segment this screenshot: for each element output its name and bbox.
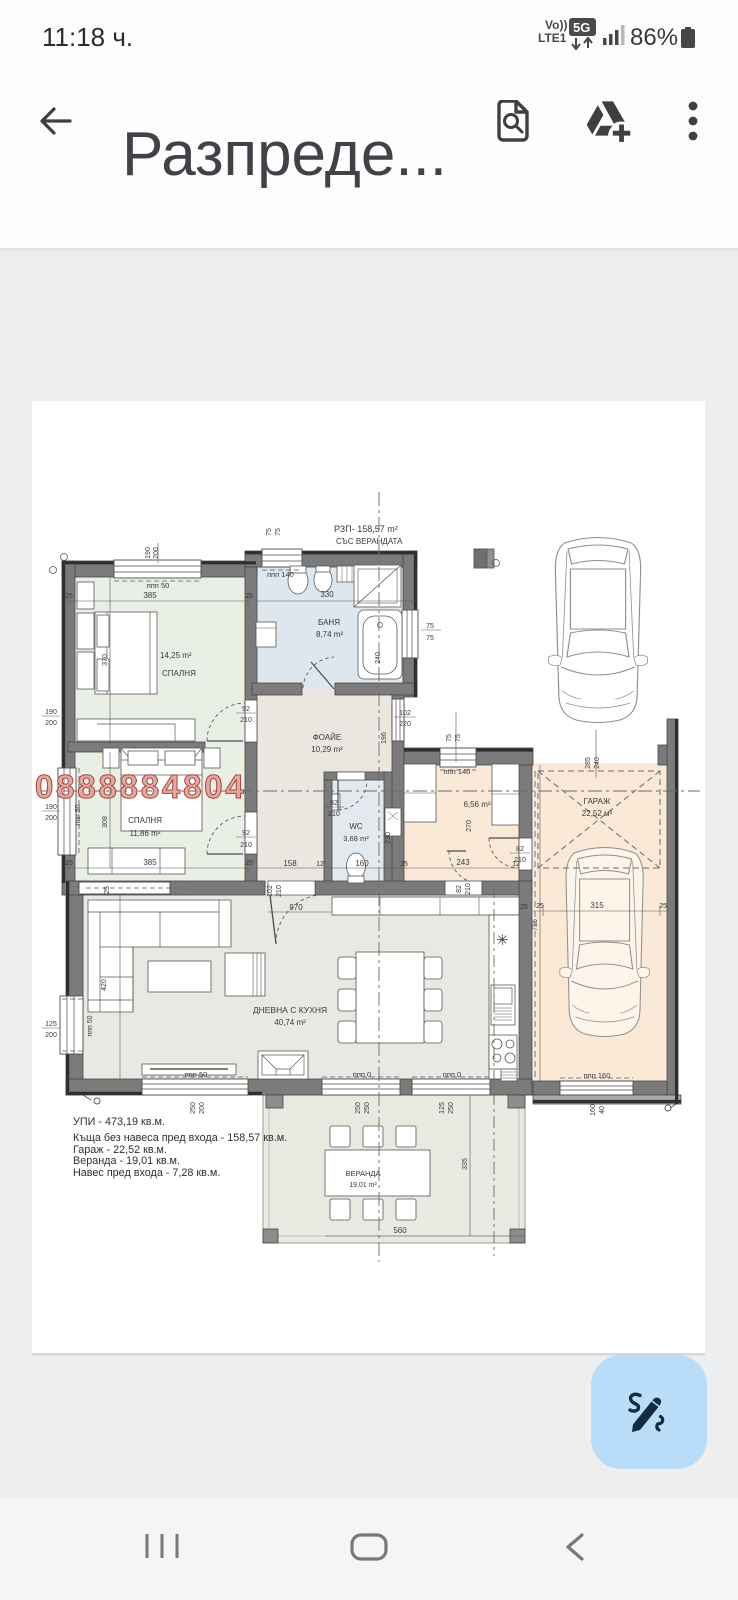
svg-text:75: 75 <box>275 528 282 536</box>
svg-text:86%: 86% <box>630 24 678 51</box>
svg-text:ппп 50: ппп 50 <box>75 804 82 825</box>
svg-text:210: 210 <box>328 811 340 818</box>
svg-text:25: 25 <box>245 593 253 600</box>
svg-text:230: 230 <box>385 832 392 844</box>
svg-text:243: 243 <box>456 858 470 867</box>
svg-text:WC: WC <box>349 822 363 831</box>
svg-text:ппп 50: ппп 50 <box>185 1070 208 1079</box>
svg-text:200: 200 <box>45 1032 57 1039</box>
svg-text:25: 25 <box>520 904 528 911</box>
svg-text:82: 82 <box>456 885 463 893</box>
svg-text:190: 190 <box>45 804 57 811</box>
svg-text:8,74 m²: 8,74 m² <box>316 630 343 639</box>
svg-text:560: 560 <box>393 1226 407 1235</box>
svg-text:25: 25 <box>400 861 408 868</box>
svg-text:200: 200 <box>199 1102 206 1114</box>
svg-text:11,86 m²: 11,86 m² <box>130 829 161 838</box>
svg-text:210: 210 <box>514 857 526 864</box>
svg-text:250: 250 <box>448 1102 455 1114</box>
svg-text:82: 82 <box>330 800 338 807</box>
svg-text:5G: 5G <box>573 20 590 35</box>
svg-text:СПАЛНЯ: СПАЛНЯ <box>128 816 162 825</box>
svg-text:3,68 m²: 3,68 m² <box>343 834 369 843</box>
svg-text:196: 196 <box>381 732 388 744</box>
svg-text:102: 102 <box>267 885 274 897</box>
svg-text:270: 270 <box>466 820 473 832</box>
svg-text:308: 308 <box>102 816 109 828</box>
svg-text:125: 125 <box>439 1102 446 1114</box>
svg-text:210: 210 <box>465 883 472 895</box>
svg-text:200: 200 <box>45 720 57 727</box>
svg-text:220: 220 <box>399 721 411 728</box>
svg-text:ппп 0: ппп 0 <box>443 1070 461 1079</box>
svg-text:БАНЯ: БАНЯ <box>318 618 340 627</box>
svg-text:40: 40 <box>599 1106 606 1114</box>
svg-text:40,74 m²: 40,74 m² <box>274 1018 306 1027</box>
svg-text:✳: ✳ <box>496 932 509 949</box>
svg-text:Къща без навеса пред входа - 1: Къща без навеса пред входа - 158,57 кв.м… <box>73 1132 287 1144</box>
svg-text:190: 190 <box>45 709 57 716</box>
svg-text:25: 25 <box>245 860 253 867</box>
svg-text:ГАРАЖ: ГАРАЖ <box>584 797 611 806</box>
svg-text:Навес пред входа - 7,28 кв.м.: Навес пред входа - 7,28 кв.м. <box>73 1167 220 1179</box>
svg-text:75: 75 <box>266 528 273 536</box>
svg-text:22,52 м²: 22,52 м² <box>582 809 613 818</box>
svg-text:Vo)): Vo)) <box>545 18 567 32</box>
svg-text:ппп 140: ппп 140 <box>444 767 471 776</box>
svg-text:285: 285 <box>585 757 592 769</box>
svg-text:25: 25 <box>65 860 73 867</box>
svg-text:ВЕРАНДА: ВЕРАНДА <box>345 1169 380 1178</box>
svg-text:ппп 50: ппп 50 <box>87 1015 94 1036</box>
svg-text:200: 200 <box>45 815 57 822</box>
svg-text:92: 92 <box>242 706 250 713</box>
svg-text:158: 158 <box>283 859 297 868</box>
svg-text:240: 240 <box>594 757 601 769</box>
svg-text:75: 75 <box>446 734 453 742</box>
svg-text:ппп 50: ппп 50 <box>147 581 170 590</box>
svg-text:СЪС ВЕРАНДАТА: СЪС ВЕРАНДАТА <box>336 537 403 546</box>
svg-text:715: 715 <box>532 919 539 931</box>
svg-text:125: 125 <box>45 1021 57 1028</box>
svg-text:6,56 m²: 6,56 m² <box>463 800 490 809</box>
svg-text:240: 240 <box>375 652 382 664</box>
svg-text:75: 75 <box>426 623 434 630</box>
svg-text:ппп 160: ппп 160 <box>584 1071 611 1080</box>
svg-text:370: 370 <box>102 654 109 666</box>
svg-text:200: 200 <box>153 547 160 559</box>
svg-text:420: 420 <box>101 979 108 991</box>
svg-text:190: 190 <box>145 547 152 559</box>
svg-text:210: 210 <box>276 885 283 897</box>
svg-text:315: 315 <box>590 901 604 910</box>
svg-text:250: 250 <box>190 1102 197 1114</box>
svg-text:Веранда - 19,01 кв.м.: Веранда - 19,01 кв.м. <box>73 1155 180 1167</box>
svg-text:РЗП- 158,57 m²: РЗП- 158,57 m² <box>334 524 398 534</box>
svg-text:12: 12 <box>316 861 324 868</box>
svg-text:СПАЛНЯ: СПАЛНЯ <box>162 669 196 678</box>
svg-text:ФОАЙЕ: ФОАЙЕ <box>313 733 342 742</box>
svg-text:25: 25 <box>536 903 544 910</box>
svg-text:0888884804: 0888884804 <box>35 768 247 805</box>
svg-text:92: 92 <box>242 830 250 837</box>
svg-text:210: 210 <box>240 842 252 849</box>
svg-text:УПИ - 473,19 кв.м.: УПИ - 473,19 кв.м. <box>73 1116 165 1128</box>
svg-text:19,01 m²: 19,01 m² <box>349 1182 377 1189</box>
svg-text:25: 25 <box>104 886 111 894</box>
svg-text:385: 385 <box>143 858 157 867</box>
svg-text:ДНЕВНА С КУХНЯ: ДНЕВНА С КУХНЯ <box>253 1005 327 1015</box>
svg-text:14,25 m²: 14,25 m² <box>160 651 192 660</box>
svg-text:25: 25 <box>65 593 73 600</box>
svg-text:ппп 140: ппп 140 <box>267 570 294 579</box>
svg-text:25: 25 <box>659 903 667 910</box>
svg-text:75: 75 <box>455 734 462 742</box>
svg-text:10,29 m²: 10,29 m² <box>311 745 343 754</box>
svg-text:250: 250 <box>355 1102 362 1114</box>
svg-text:75: 75 <box>426 635 434 642</box>
svg-text:385: 385 <box>143 591 157 600</box>
svg-text:250: 250 <box>364 1102 371 1114</box>
svg-text:160: 160 <box>355 859 369 868</box>
svg-text:330: 330 <box>320 590 334 599</box>
svg-text:ппп 0: ппп 0 <box>353 1070 371 1079</box>
svg-text:210: 210 <box>240 717 252 724</box>
svg-text:102: 102 <box>399 710 411 717</box>
svg-text:LTE1: LTE1 <box>538 31 567 45</box>
svg-text:160: 160 <box>590 1104 597 1116</box>
svg-text:335: 335 <box>462 1158 469 1170</box>
svg-text:82: 82 <box>516 846 524 853</box>
svg-text:970: 970 <box>289 903 303 912</box>
